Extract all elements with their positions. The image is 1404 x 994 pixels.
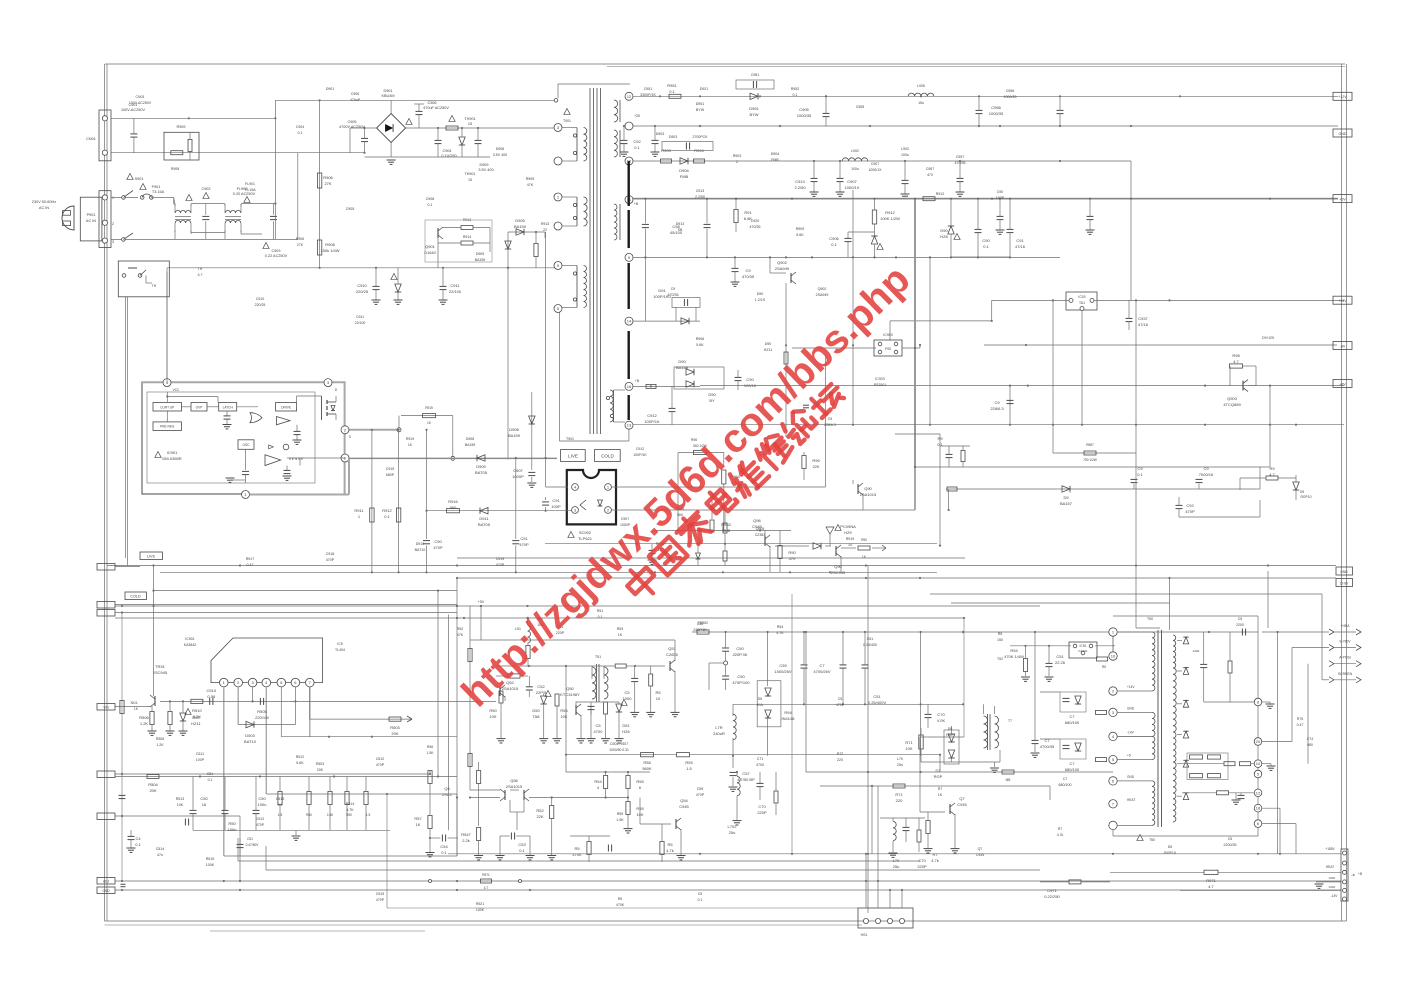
svg-text:Q96: Q96 bbox=[753, 518, 761, 523]
svg-text:R505: R505 bbox=[257, 709, 267, 714]
svg-text:0.1: 0.1 bbox=[1137, 472, 1143, 477]
svg-text:4.7K: 4.7K bbox=[776, 631, 784, 635]
svg-text:A-POSI: A-POSI bbox=[1339, 656, 1351, 660]
svg-text:Q54: Q54 bbox=[680, 798, 688, 803]
svg-text:4.7K: 4.7K bbox=[346, 808, 354, 812]
svg-text:220P.3K: 220P.3K bbox=[733, 652, 748, 657]
svg-text:470K 1/4W: 470K 1/4W bbox=[1004, 654, 1024, 659]
svg-text:0.1V/250: 0.1V/250 bbox=[441, 154, 456, 158]
svg-text:220/25: 220/25 bbox=[255, 303, 266, 307]
svg-text:T901: T901 bbox=[566, 437, 574, 441]
svg-text:DRIVE: DRIVE bbox=[281, 405, 291, 409]
svg-text:TH901: TH901 bbox=[465, 172, 476, 176]
svg-text:Q902: Q902 bbox=[818, 287, 827, 291]
svg-text:D909: D909 bbox=[476, 464, 486, 469]
svg-text:16: 16 bbox=[627, 384, 632, 389]
svg-text:220: 220 bbox=[896, 798, 903, 803]
svg-text:GND: GND bbox=[1329, 876, 1337, 880]
svg-text:R912: R912 bbox=[936, 192, 945, 196]
svg-text:C905: C905 bbox=[346, 207, 355, 211]
svg-text:T50: T50 bbox=[1149, 838, 1155, 842]
svg-text:BA159: BA159 bbox=[465, 443, 476, 447]
svg-text:D905: D905 bbox=[476, 252, 484, 256]
svg-text:C51: C51 bbox=[1056, 654, 1064, 659]
svg-text:R58: R58 bbox=[643, 760, 651, 765]
svg-text:R914: R914 bbox=[463, 235, 471, 239]
svg-text:D9 HZ5: D9 HZ5 bbox=[1262, 336, 1274, 340]
svg-text:1K: 1K bbox=[134, 707, 139, 711]
svg-text:0.1: 0.1 bbox=[598, 615, 603, 619]
svg-text:C90: C90 bbox=[746, 377, 754, 382]
svg-text:IC5: IC5 bbox=[337, 642, 343, 646]
svg-text:PC09NA: PC09NA bbox=[840, 524, 856, 529]
svg-text:C906: C906 bbox=[351, 92, 359, 96]
svg-text:C951: C951 bbox=[644, 87, 653, 91]
svg-text:0.25/400V: 0.25/400V bbox=[868, 700, 887, 705]
svg-text:R75: R75 bbox=[1297, 717, 1303, 721]
svg-text:Q7: Q7 bbox=[959, 796, 965, 801]
svg-text:10: 10 bbox=[1111, 654, 1116, 659]
svg-text:R987: R987 bbox=[1086, 443, 1094, 447]
svg-text:GND: GND bbox=[1339, 132, 1347, 136]
svg-text:C71: C71 bbox=[757, 757, 764, 761]
svg-text:T7: T7 bbox=[1008, 719, 1012, 723]
svg-text:18: 18 bbox=[1256, 806, 1261, 811]
svg-text:470P: 470P bbox=[496, 563, 505, 567]
svg-text:3300P/1K: 3300P/1K bbox=[640, 93, 656, 97]
svg-text:C902: C902 bbox=[201, 187, 210, 191]
svg-text:OVP: OVP bbox=[196, 405, 203, 409]
svg-text:C52: C52 bbox=[537, 684, 545, 689]
svg-text:TA1: TA1 bbox=[1079, 301, 1085, 305]
svg-text:R7: R7 bbox=[938, 787, 943, 791]
svg-text:TR51: TR51 bbox=[155, 664, 166, 669]
svg-text:BYW: BYW bbox=[696, 108, 705, 112]
svg-text:C937: C937 bbox=[1138, 316, 1148, 321]
svg-text:100n: 100n bbox=[258, 802, 267, 807]
svg-text:S E N S E: S E N S E bbox=[289, 457, 303, 461]
svg-text:R515: R515 bbox=[206, 857, 215, 861]
svg-text:470/35: 470/35 bbox=[955, 161, 966, 165]
svg-text:0.47: 0.47 bbox=[247, 563, 254, 567]
svg-text:100V-AC250V: 100V-AC250V bbox=[129, 101, 152, 105]
svg-text:R917: R917 bbox=[246, 557, 255, 561]
svg-text:1K: 1K bbox=[618, 633, 623, 637]
svg-text:2200: 2200 bbox=[1236, 623, 1244, 627]
svg-text:R908: R908 bbox=[325, 242, 335, 247]
svg-text:0.1: 0.1 bbox=[983, 244, 989, 249]
svg-text:C91: C91 bbox=[1016, 238, 1024, 243]
svg-text:HZ11: HZ11 bbox=[191, 721, 201, 726]
svg-text:MB: MB bbox=[1006, 778, 1011, 782]
svg-text:D5: D5 bbox=[758, 697, 763, 701]
svg-text:470: 470 bbox=[927, 173, 933, 177]
svg-text:R503: R503 bbox=[390, 725, 400, 730]
svg-text:C955: C955 bbox=[856, 105, 865, 109]
svg-text:100K 1/2W: 100K 1/2W bbox=[880, 216, 900, 221]
svg-text:C511: C511 bbox=[196, 752, 204, 756]
svg-text:C5: C5 bbox=[1228, 837, 1233, 841]
svg-text:D903: D903 bbox=[656, 132, 665, 136]
svg-text:100K: 100K bbox=[206, 863, 215, 867]
svg-text:1.5: 1.5 bbox=[686, 766, 692, 771]
svg-text:D921: D921 bbox=[700, 87, 708, 91]
svg-text:10: 10 bbox=[848, 543, 852, 547]
svg-text:R5: R5 bbox=[1102, 665, 1106, 669]
svg-text:C92: C92 bbox=[1186, 503, 1194, 508]
svg-text:47K: 47K bbox=[457, 633, 464, 637]
svg-text:4.7k: 4.7k bbox=[1057, 833, 1064, 837]
svg-text:2SC1: 2SC1 bbox=[442, 792, 453, 797]
svg-text:0.22 AC250V: 0.22 AC250V bbox=[265, 254, 288, 258]
svg-text:C90: C90 bbox=[434, 539, 442, 544]
svg-text:22/100: 22/100 bbox=[355, 321, 366, 325]
svg-text:D90: D90 bbox=[678, 359, 686, 364]
svg-text:1.5K: 1.5K bbox=[427, 751, 435, 755]
svg-text:SB: SB bbox=[678, 228, 683, 232]
svg-text:SCREEN: SCREEN bbox=[1338, 672, 1353, 676]
svg-text:LIVE: LIVE bbox=[147, 555, 156, 559]
svg-text:D913: D913 bbox=[676, 222, 685, 226]
svg-text:C51: C51 bbox=[873, 694, 881, 699]
svg-text:13: 13 bbox=[627, 423, 632, 428]
svg-text:14: 14 bbox=[627, 319, 632, 324]
svg-text:+5: +5 bbox=[1127, 754, 1131, 758]
svg-text:L902: L902 bbox=[851, 149, 859, 153]
svg-text:D911: D911 bbox=[479, 516, 489, 521]
svg-text:PS2501: PS2501 bbox=[874, 383, 887, 387]
svg-text:C957: C957 bbox=[926, 167, 934, 171]
svg-text:12: 12 bbox=[1256, 790, 1261, 795]
svg-text:D951: D951 bbox=[749, 106, 759, 111]
svg-text:R908: R908 bbox=[171, 167, 179, 171]
svg-text:L70: L70 bbox=[893, 858, 900, 863]
svg-text:0.1: 0.1 bbox=[831, 242, 837, 247]
svg-text:10K: 10K bbox=[177, 803, 184, 807]
svg-text:0.1: 0.1 bbox=[669, 89, 675, 94]
svg-text:R96: R96 bbox=[691, 438, 697, 442]
svg-text:CN01: CN01 bbox=[86, 137, 96, 141]
svg-text:680: 680 bbox=[1307, 743, 1313, 747]
svg-text:RGP10: RGP10 bbox=[1300, 495, 1311, 499]
svg-text:100u: 100u bbox=[851, 167, 859, 171]
svg-text:V.0K: V.0K bbox=[937, 718, 946, 723]
svg-text:KBU4M: KBU4M bbox=[381, 94, 394, 98]
svg-text:1000/35: 1000/35 bbox=[797, 113, 812, 118]
svg-text:TH901: TH901 bbox=[464, 117, 475, 121]
svg-text:C918: C918 bbox=[326, 552, 335, 556]
svg-text:-8V: -8V bbox=[1340, 344, 1346, 348]
svg-text:10K: 10K bbox=[905, 746, 912, 751]
svg-text:T901: T901 bbox=[563, 119, 571, 123]
svg-text:5.6K: 5.6K bbox=[696, 343, 704, 347]
svg-text:C908: C908 bbox=[426, 197, 435, 201]
svg-text:22K: 22K bbox=[812, 464, 819, 469]
svg-text:D908: D908 bbox=[466, 437, 474, 441]
svg-text:4700/35: 4700/35 bbox=[1040, 744, 1055, 749]
svg-text:KA431: KA431 bbox=[1078, 649, 1087, 653]
svg-text:R506: R506 bbox=[156, 737, 164, 741]
svg-text:+B: +B bbox=[1351, 873, 1355, 877]
svg-text:C920: C920 bbox=[751, 219, 760, 223]
svg-text:C906: C906 bbox=[427, 101, 436, 105]
svg-text:C912: C912 bbox=[636, 447, 644, 451]
svg-text:2.2/50: 2.2/50 bbox=[695, 195, 705, 199]
svg-text:2SA949: 2SA949 bbox=[775, 266, 790, 271]
svg-text:C910: C910 bbox=[256, 297, 264, 301]
svg-text:C957: C957 bbox=[956, 155, 965, 159]
svg-text:R906: R906 bbox=[296, 237, 304, 241]
svg-text:FMB: FMB bbox=[680, 174, 689, 179]
svg-text:22: 22 bbox=[543, 228, 547, 232]
svg-text:Q50: Q50 bbox=[566, 686, 574, 691]
svg-text:1000P: 1000P bbox=[512, 474, 524, 479]
svg-text:Q7: Q7 bbox=[978, 847, 983, 851]
svg-text:RGP: RGP bbox=[934, 774, 943, 779]
svg-text:3.5V 400: 3.5V 400 bbox=[493, 153, 507, 157]
svg-text:+B: +B bbox=[635, 379, 640, 383]
svg-text:D910: D910 bbox=[416, 542, 425, 546]
svg-text:15: 15 bbox=[468, 122, 472, 126]
svg-text:470P: 470P bbox=[696, 793, 705, 797]
svg-text:R96: R96 bbox=[812, 458, 820, 463]
svg-text:D5: D5 bbox=[1168, 845, 1173, 849]
svg-text:R971: R971 bbox=[482, 873, 490, 877]
svg-text:ADJ: ADJ bbox=[103, 879, 109, 883]
svg-text:HZ6: HZ6 bbox=[622, 729, 630, 734]
svg-text:+HEA: +HEA bbox=[1341, 624, 1351, 628]
svg-text:R5: R5 bbox=[574, 846, 580, 851]
svg-text:C904: C904 bbox=[442, 149, 451, 153]
svg-text:220: 220 bbox=[837, 758, 843, 762]
svg-text:C70: C70 bbox=[758, 804, 766, 809]
svg-text:TH: TH bbox=[152, 284, 157, 288]
svg-text:12: 12 bbox=[627, 94, 632, 99]
svg-text:D904: D904 bbox=[771, 152, 780, 156]
svg-text:R50: R50 bbox=[346, 813, 352, 817]
svg-text:0.58: 0.58 bbox=[207, 694, 216, 699]
svg-text:R5: R5 bbox=[998, 632, 1003, 636]
svg-text:C90: C90 bbox=[997, 190, 1004, 194]
svg-text:S901: S901 bbox=[135, 177, 144, 181]
svg-text:R5: R5 bbox=[667, 842, 673, 847]
svg-text:100P/1K: 100P/1K bbox=[633, 453, 647, 457]
svg-text:22P/5: 22P/5 bbox=[536, 690, 547, 695]
svg-text:Q5: Q5 bbox=[444, 786, 450, 791]
svg-text:0.1: 0.1 bbox=[519, 848, 525, 853]
svg-text:GND: GND bbox=[1329, 885, 1337, 889]
svg-text:470K: 470K bbox=[616, 903, 625, 907]
svg-text:0.1: 0.1 bbox=[428, 203, 433, 207]
svg-text:D50: D50 bbox=[532, 708, 540, 713]
svg-text:C958: C958 bbox=[991, 105, 1001, 110]
svg-text:15: 15 bbox=[468, 178, 472, 182]
svg-text:C51: C51 bbox=[207, 772, 213, 776]
svg-text:+5V: +5V bbox=[1339, 197, 1346, 201]
svg-text:CURT UP: CURT UP bbox=[160, 405, 174, 409]
svg-text:R911: R911 bbox=[354, 508, 364, 513]
svg-text:C70: C70 bbox=[918, 858, 926, 863]
svg-text:L902: L902 bbox=[901, 147, 909, 151]
svg-text:100n: 100n bbox=[228, 827, 237, 832]
svg-text:470P: 470P bbox=[836, 703, 845, 707]
svg-text:2: 2 bbox=[736, 160, 738, 164]
svg-text:F901: F901 bbox=[152, 185, 161, 189]
svg-text:22/100: 22/100 bbox=[449, 289, 462, 294]
svg-text:470P: 470P bbox=[376, 898, 385, 902]
svg-text:BAT10: BAT10 bbox=[244, 739, 257, 744]
svg-text:R951: R951 bbox=[667, 83, 677, 88]
svg-text:R94: R94 bbox=[1010, 648, 1018, 653]
svg-text:0.1: 0.1 bbox=[793, 93, 798, 97]
svg-text:1.5: 1.5 bbox=[366, 813, 371, 817]
svg-text:R51: R51 bbox=[597, 609, 603, 613]
svg-text:BA159: BA159 bbox=[475, 258, 486, 262]
svg-text:D90: D90 bbox=[765, 342, 772, 346]
svg-text:R55: R55 bbox=[636, 806, 644, 811]
svg-text:R916: R916 bbox=[448, 499, 458, 504]
svg-text:C90: C90 bbox=[982, 238, 990, 243]
svg-text:C951: C951 bbox=[751, 73, 759, 77]
svg-text:C70: C70 bbox=[937, 712, 945, 717]
svg-text:R5: R5 bbox=[655, 690, 661, 695]
svg-text:R7: R7 bbox=[932, 852, 938, 857]
svg-text:T52: T52 bbox=[997, 657, 1003, 661]
svg-text:P901: P901 bbox=[87, 213, 96, 217]
svg-text:5.6K: 5.6K bbox=[796, 233, 804, 237]
svg-text:0.1: 0.1 bbox=[384, 514, 390, 519]
svg-text:+25: +25 bbox=[634, 114, 640, 118]
svg-text:C504 R507: C504 R507 bbox=[610, 742, 628, 746]
svg-text:C7: C7 bbox=[1063, 777, 1068, 781]
svg-text:AC IN: AC IN bbox=[86, 219, 96, 223]
svg-text:4700: 4700 bbox=[756, 763, 764, 767]
svg-text:R56: R56 bbox=[560, 708, 568, 713]
svg-text:R504: R504 bbox=[148, 782, 158, 787]
svg-text:T3.15A: T3.15A bbox=[244, 188, 256, 192]
svg-text:0.1: 0.1 bbox=[135, 842, 141, 847]
svg-text:D905: D905 bbox=[515, 218, 525, 223]
svg-text:2200: 2200 bbox=[1193, 649, 1200, 653]
svg-text:C56: C56 bbox=[697, 622, 704, 626]
svg-text:R909: R909 bbox=[176, 125, 185, 129]
svg-text:Q903: Q903 bbox=[1227, 396, 1238, 401]
svg-text:Q901: Q901 bbox=[425, 244, 436, 249]
svg-text:R9: R9 bbox=[937, 436, 943, 441]
svg-text:KA3842: KA3842 bbox=[184, 643, 197, 647]
svg-text:D90: D90 bbox=[757, 292, 764, 296]
svg-text:470P: 470P bbox=[326, 558, 335, 562]
svg-text:C519: C519 bbox=[376, 892, 384, 896]
svg-text:2: 2 bbox=[112, 222, 114, 226]
svg-text:20: 20 bbox=[1256, 739, 1261, 744]
svg-text:100P: 100P bbox=[551, 504, 561, 509]
svg-text:100K: 100K bbox=[476, 908, 485, 912]
svg-text:100V-AC250V: 100V-AC250V bbox=[121, 108, 146, 112]
svg-text:470P: 470P bbox=[376, 763, 385, 767]
svg-text:560: 560 bbox=[450, 505, 457, 510]
svg-text:4700V AC250V: 4700V AC250V bbox=[339, 125, 365, 129]
svg-text:27K: 27K bbox=[324, 181, 331, 186]
svg-text:1K: 1K bbox=[408, 443, 413, 447]
svg-text:L905: L905 bbox=[917, 84, 925, 88]
svg-text:4700/26V: 4700/26V bbox=[813, 669, 830, 674]
svg-text:470: 470 bbox=[789, 556, 796, 561]
svg-text:680/100: 680/100 bbox=[1065, 720, 1080, 725]
svg-text:1K: 1K bbox=[416, 822, 421, 827]
svg-text:220/1W: 220/1W bbox=[255, 715, 269, 720]
svg-text:R510: R510 bbox=[192, 708, 202, 713]
svg-text:C956: C956 bbox=[1006, 89, 1015, 93]
svg-text:NC6: NC6 bbox=[131, 701, 138, 705]
svg-text:2SA1015: 2SA1015 bbox=[506, 784, 523, 789]
svg-text:C4: C4 bbox=[135, 836, 141, 841]
svg-text:PRE REG: PRE REG bbox=[160, 425, 175, 429]
svg-text:C9: C9 bbox=[745, 268, 751, 273]
svg-text:C59: C59 bbox=[779, 663, 787, 668]
svg-text:D904: D904 bbox=[679, 168, 689, 173]
svg-text:R52: R52 bbox=[457, 627, 464, 631]
svg-text:25u: 25u bbox=[729, 830, 736, 835]
svg-text:D901: D901 bbox=[383, 89, 392, 93]
svg-text:470P: 470P bbox=[256, 823, 265, 827]
svg-text:+12V: +12V bbox=[1338, 95, 1347, 99]
svg-text:C7: C7 bbox=[1069, 714, 1075, 719]
svg-text:BA159: BA159 bbox=[514, 224, 527, 229]
svg-text:R54: R54 bbox=[777, 625, 784, 629]
svg-text:R59: R59 bbox=[617, 812, 624, 816]
svg-text:470K: 470K bbox=[572, 852, 582, 857]
svg-text:D9: D9 bbox=[1300, 490, 1304, 494]
svg-text:+5V: +5V bbox=[478, 600, 485, 604]
svg-text:R521: R521 bbox=[476, 902, 484, 906]
svg-text:R971: R971 bbox=[1206, 878, 1216, 883]
svg-text:240uR: 240uR bbox=[713, 731, 725, 736]
svg-text:IC501: IC501 bbox=[185, 637, 194, 641]
svg-text:HS1: HS1 bbox=[861, 933, 868, 937]
svg-text:IC903: IC903 bbox=[875, 377, 884, 381]
svg-text:HZ8: HZ8 bbox=[940, 234, 948, 239]
svg-text:L702: L702 bbox=[728, 824, 738, 829]
svg-text:4.7: 4.7 bbox=[1269, 472, 1275, 477]
svg-text:228/6.3: 228/6.3 bbox=[990, 406, 1004, 411]
svg-text:D908: D908 bbox=[509, 427, 519, 432]
svg-text:BA158: BA158 bbox=[676, 365, 689, 370]
svg-text:D903: D903 bbox=[669, 135, 677, 139]
svg-text:C5: C5 bbox=[1238, 617, 1243, 621]
svg-text:R55: R55 bbox=[636, 779, 644, 784]
svg-text:C54: C54 bbox=[440, 844, 448, 849]
svg-text:L7R: L7R bbox=[715, 725, 722, 730]
svg-text:2.2/50: 2.2/50 bbox=[794, 185, 806, 190]
svg-text:+B: +B bbox=[634, 202, 639, 206]
svg-text:R59: R59 bbox=[685, 760, 693, 765]
svg-text:C907: C907 bbox=[871, 162, 879, 166]
svg-text:BA159: BA159 bbox=[508, 433, 521, 438]
svg-text:D5: D5 bbox=[948, 727, 953, 731]
svg-text:T51: T51 bbox=[595, 655, 601, 659]
svg-text:25u: 25u bbox=[897, 763, 903, 767]
svg-text:C92: C92 bbox=[633, 139, 641, 144]
svg-text:C50: C50 bbox=[737, 674, 745, 679]
svg-text:BAT05: BAT05 bbox=[478, 522, 491, 527]
svg-text:IC51: IC51 bbox=[1080, 644, 1087, 648]
svg-text:1000/35: 1000/35 bbox=[989, 111, 1004, 116]
svg-text:150: 150 bbox=[997, 638, 1003, 642]
svg-text:2.4K: 2.4K bbox=[327, 813, 334, 817]
svg-text:COLD: COLD bbox=[130, 595, 141, 599]
svg-text:4.7: 4.7 bbox=[198, 273, 203, 277]
